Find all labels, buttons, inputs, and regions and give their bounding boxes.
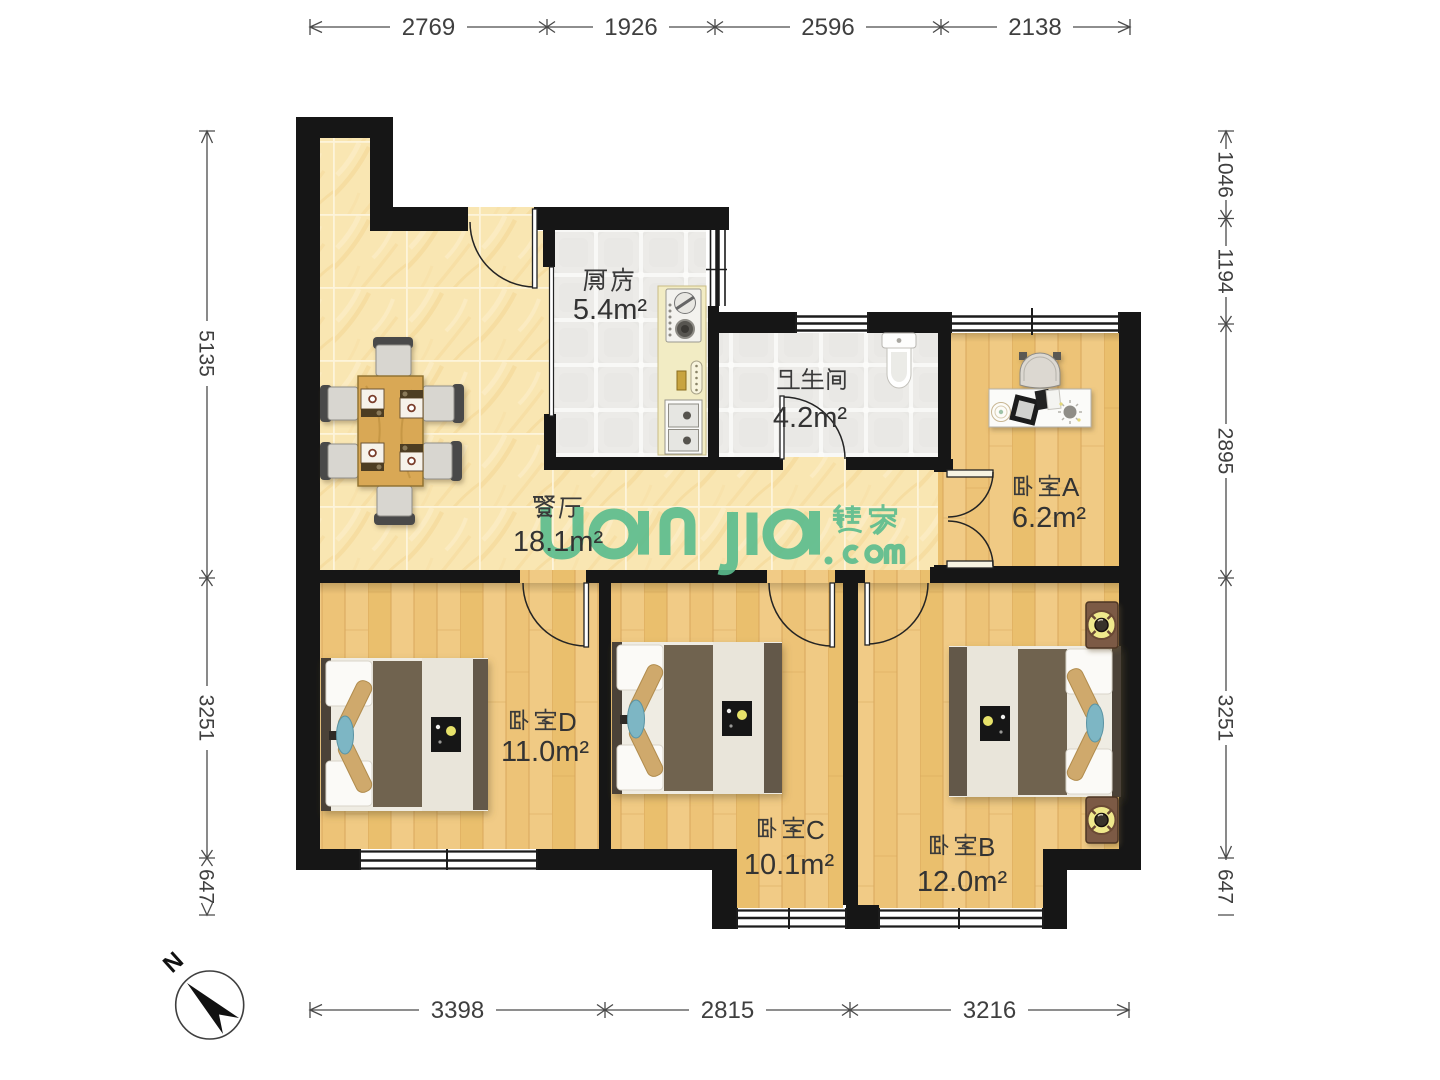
svg-text:1046: 1046 (1214, 151, 1237, 198)
svg-text:2596: 2596 (801, 14, 854, 41)
svg-text:647: 647 (195, 869, 218, 904)
svg-text:A: A (1062, 472, 1080, 502)
svg-text:12.0m²: 12.0m² (917, 866, 1008, 898)
svg-text:647: 647 (1214, 869, 1237, 904)
svg-text:B: B (978, 832, 995, 862)
svg-text:1926: 1926 (604, 14, 657, 41)
svg-text:3216: 3216 (963, 997, 1016, 1024)
svg-text:D: D (558, 707, 577, 737)
svg-text:3398: 3398 (431, 997, 484, 1024)
svg-text:2895: 2895 (1214, 428, 1237, 475)
svg-text:5.4m²: 5.4m² (573, 294, 647, 326)
svg-text:5135: 5135 (195, 330, 218, 377)
svg-text:10.1m²: 10.1m² (744, 849, 835, 881)
svg-text:2138: 2138 (1008, 14, 1061, 41)
svg-text:18.1m²: 18.1m² (513, 526, 604, 558)
svg-text:2815: 2815 (701, 997, 754, 1024)
svg-text:4.2m²: 4.2m² (773, 402, 847, 434)
svg-text:3251: 3251 (195, 695, 218, 742)
svg-text:11.0m²: 11.0m² (501, 736, 589, 768)
svg-text:6.2m²: 6.2m² (1012, 502, 1086, 534)
svg-text:1194: 1194 (1214, 248, 1237, 293)
svg-text:2769: 2769 (402, 14, 455, 41)
svg-text:C: C (806, 815, 825, 845)
svg-text:3251: 3251 (1214, 695, 1237, 742)
